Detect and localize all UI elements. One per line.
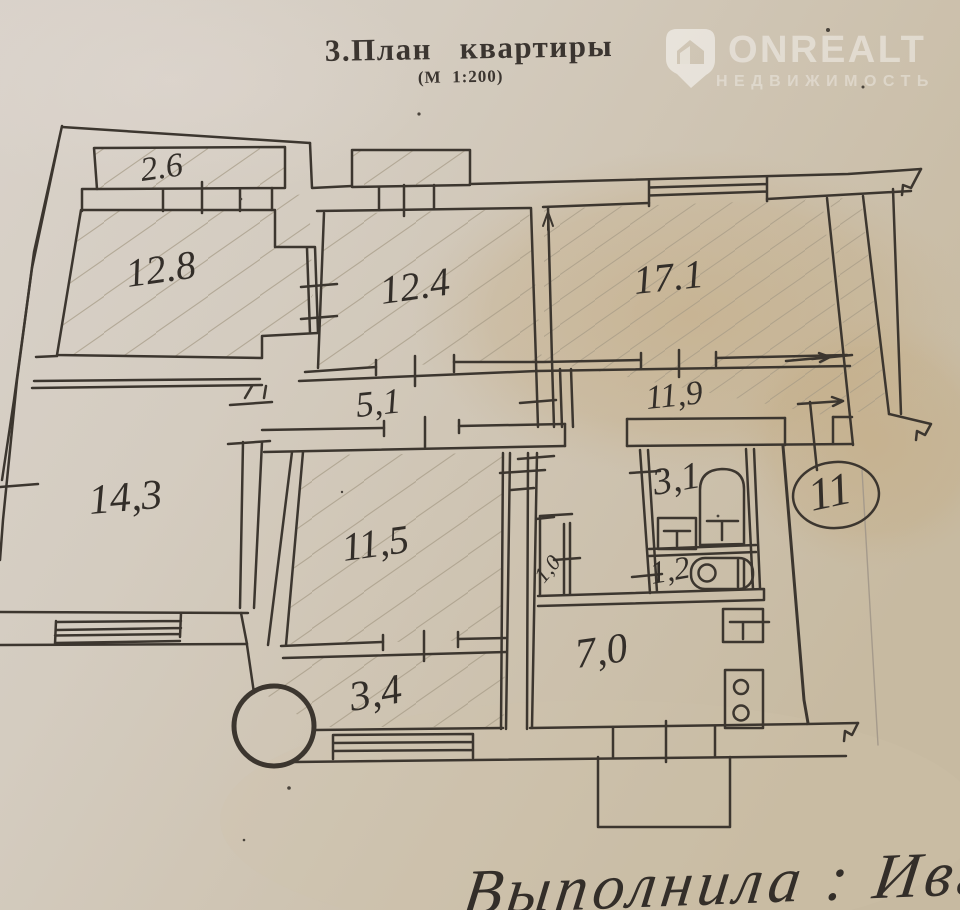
svg-text:5,1: 5,1 (354, 380, 403, 424)
svg-text:17.1: 17.1 (631, 251, 705, 303)
svg-text:3,4: 3,4 (345, 666, 406, 721)
svg-text:3.План квартиры: 3.План квартиры (325, 28, 614, 68)
svg-text:11,5: 11,5 (339, 516, 412, 570)
svg-text:2.6: 2.6 (138, 146, 185, 189)
svg-text:(М 1:200): (М 1:200) (418, 66, 504, 86)
svg-text:11,9: 11,9 (644, 374, 705, 417)
svg-text:1,2: 1,2 (647, 548, 693, 590)
svg-text:14,3: 14,3 (87, 472, 164, 524)
svg-text:3,1: 3,1 (648, 454, 703, 504)
svg-text:ONREALT: ONREALT (728, 29, 926, 71)
svg-text:НЕДВИЖИМОСТЬ: НЕДВИЖИМОСТЬ (716, 73, 935, 90)
svg-text:7,0: 7,0 (572, 625, 630, 678)
